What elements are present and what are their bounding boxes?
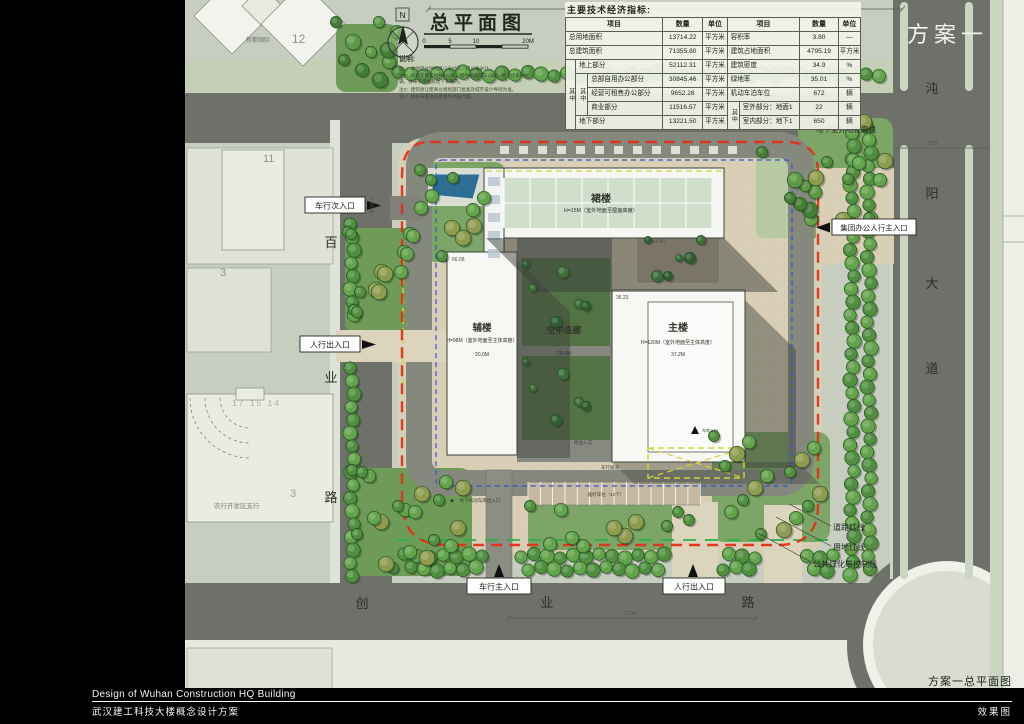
table-row: 总建筑面积71355.80平方米 建筑占地面积4795.19平方米 [566, 46, 861, 60]
annex-label: 辅楼 [472, 322, 492, 334]
project-title-en: Design of Wuhan Construction HQ Building [92, 689, 296, 700]
note-item: 注2：机动车停车位共672辆，其中地面停车22辆、地下停车650辆，分布于场地及… [399, 73, 535, 85]
svg-text:路: 路 [741, 595, 754, 610]
ramp-label: 车行坡道 [601, 464, 619, 471]
svg-text:36.23: 36.23 [616, 295, 629, 301]
veh-secondary-entrance-label: 车行次入口 [315, 201, 355, 211]
table-row: 其中 总部自用办公部分30845.46平方米 绿地率35.01% [566, 74, 861, 88]
svg-text:20M: 20M [522, 39, 534, 45]
note-item: 注3：建筑退让距离以规划部门批复及城市设计导则为准。 [399, 87, 535, 93]
svg-text:77.04: 77.04 [624, 611, 637, 617]
svg-text:10: 10 [473, 39, 480, 45]
note-item: 注4：绿化布置详见景观专项设计图。 [399, 94, 535, 100]
svg-text:11: 11 [263, 153, 274, 165]
scheme-label: 方案一 [907, 22, 988, 47]
svg-text:3: 3 [220, 267, 226, 279]
sheet-left-margin [0, 0, 185, 724]
table-row: 总用地面积13714.22平方米 容积率3.80— [566, 32, 861, 46]
table-header-row: 项目数量单位 项目数量单位 [566, 18, 861, 32]
svg-text:7.08: 7.08 [370, 203, 376, 213]
ped-south-entrance-label: 人行出入口 [674, 582, 714, 592]
ped-west-entrance-label: 人行出入口 [310, 340, 350, 350]
notes-title: 说明: [399, 54, 535, 64]
svg-text:路: 路 [324, 490, 337, 505]
svg-text:12: 12 [292, 32, 306, 46]
svg-text:大: 大 [925, 276, 938, 291]
group-main-entrance-label: 集团办公人行主入口 [840, 223, 908, 233]
road-redline-label: 道路红线 [833, 522, 865, 532]
temp-parking-label: 临时车位（12个） [588, 491, 625, 498]
main-tower-sub: H=120M（室外地面至主体高度） [641, 339, 715, 346]
garage-e-label: 车库入口 [702, 427, 718, 433]
main-tower-dim: 37.2M [671, 352, 685, 358]
table-row: 地下部分13221.50平方米 室内部分：地下1650辆 [566, 116, 861, 130]
drawing-sheet: 总平面图 N 0 5 10 20M 方案一 方案一总平面图 裙楼 H=15M（室… [0, 0, 1024, 724]
svg-text:3: 3 [290, 488, 296, 500]
svg-text:A3.46: A3.46 [652, 239, 665, 245]
annex-dim: 20.0M [475, 352, 489, 358]
south-road-name: 创 [355, 596, 368, 611]
svg-text:业: 业 [324, 370, 337, 385]
svg-text:道: 道 [925, 361, 938, 376]
title-block: Design of Wuhan Construction HQ Building… [0, 688, 1024, 724]
plan-caption: 方案一总平面图 [928, 674, 1012, 688]
svg-text:阳: 阳 [925, 186, 938, 201]
biz-entry-label: 商业入口 [574, 439, 592, 446]
project-title-cn: 武汉建工科技大楼概念设计方案 [92, 704, 239, 718]
svg-text:17 15 14: 17 15 14 [232, 398, 281, 408]
indicators-table: 主要技术经济指标: 项目数量单位 项目数量单位 总用地面积13714.22平方米… [565, 2, 861, 130]
svg-text:业: 业 [540, 595, 553, 610]
indicators-table-title: 主要技术经济指标: [565, 2, 861, 17]
svg-text:32.0: 32.0 [927, 141, 937, 147]
garage-sw-label: 地下机动车库出入口 [460, 497, 501, 504]
svg-text:37.01: 37.01 [520, 258, 533, 264]
svg-text:◆: ◆ [450, 498, 454, 504]
east-road-name: 沌 [925, 81, 938, 96]
sheet-type-label: 效果图 [880, 704, 1012, 718]
annex-sub: H=98M（室外地面至主体高度） [446, 337, 517, 344]
site-redline-label: 用地红线 [833, 542, 865, 552]
corridor-label: 空中连廊 [547, 325, 582, 335]
table-row: 其中 地上部分52112.31平方米 建筑密度34.9% [566, 60, 861, 74]
plan-notes: 说明: 注1：本图尺寸除标高以米计外，均以毫米计。 注2：机动车停车位共672辆… [399, 54, 535, 101]
main-tower-label: 主楼 [668, 321, 688, 334]
table-row: 经营可租售办公部分9652.28平方米 机动车泊车位672辆 [566, 88, 861, 102]
divider-line [92, 701, 1012, 702]
svg-text:66.68: 66.68 [452, 257, 465, 263]
note-item: 注1：本图尺寸除标高以米计外，均以毫米计。 [399, 66, 535, 72]
north-label: N [399, 10, 405, 20]
estate-label: 新都国际 [246, 36, 270, 44]
west-road-name: 百 [324, 235, 337, 250]
plan-title: 总平面图 [430, 11, 526, 34]
podium-sub: H=15M（室外地面至屋面高度） [564, 206, 638, 214]
table-row: 商业部分11516.57平方米 其中 室外部分：地面122辆 [566, 102, 861, 116]
bank-label: 农行开发区支行 [214, 501, 260, 510]
veh-main-entrance-label: 车行主入口 [479, 582, 519, 592]
site-plan-drawing: 总平面图 N 0 5 10 20M 方案一 方案一总平面图 裙楼 H=15M（室… [0, 0, 1024, 724]
greenbelt-label: 公共绿化带控制线 [813, 559, 877, 569]
corridor-dim: 20.0M [557, 351, 571, 357]
podium-label: 裙楼 [591, 192, 611, 205]
